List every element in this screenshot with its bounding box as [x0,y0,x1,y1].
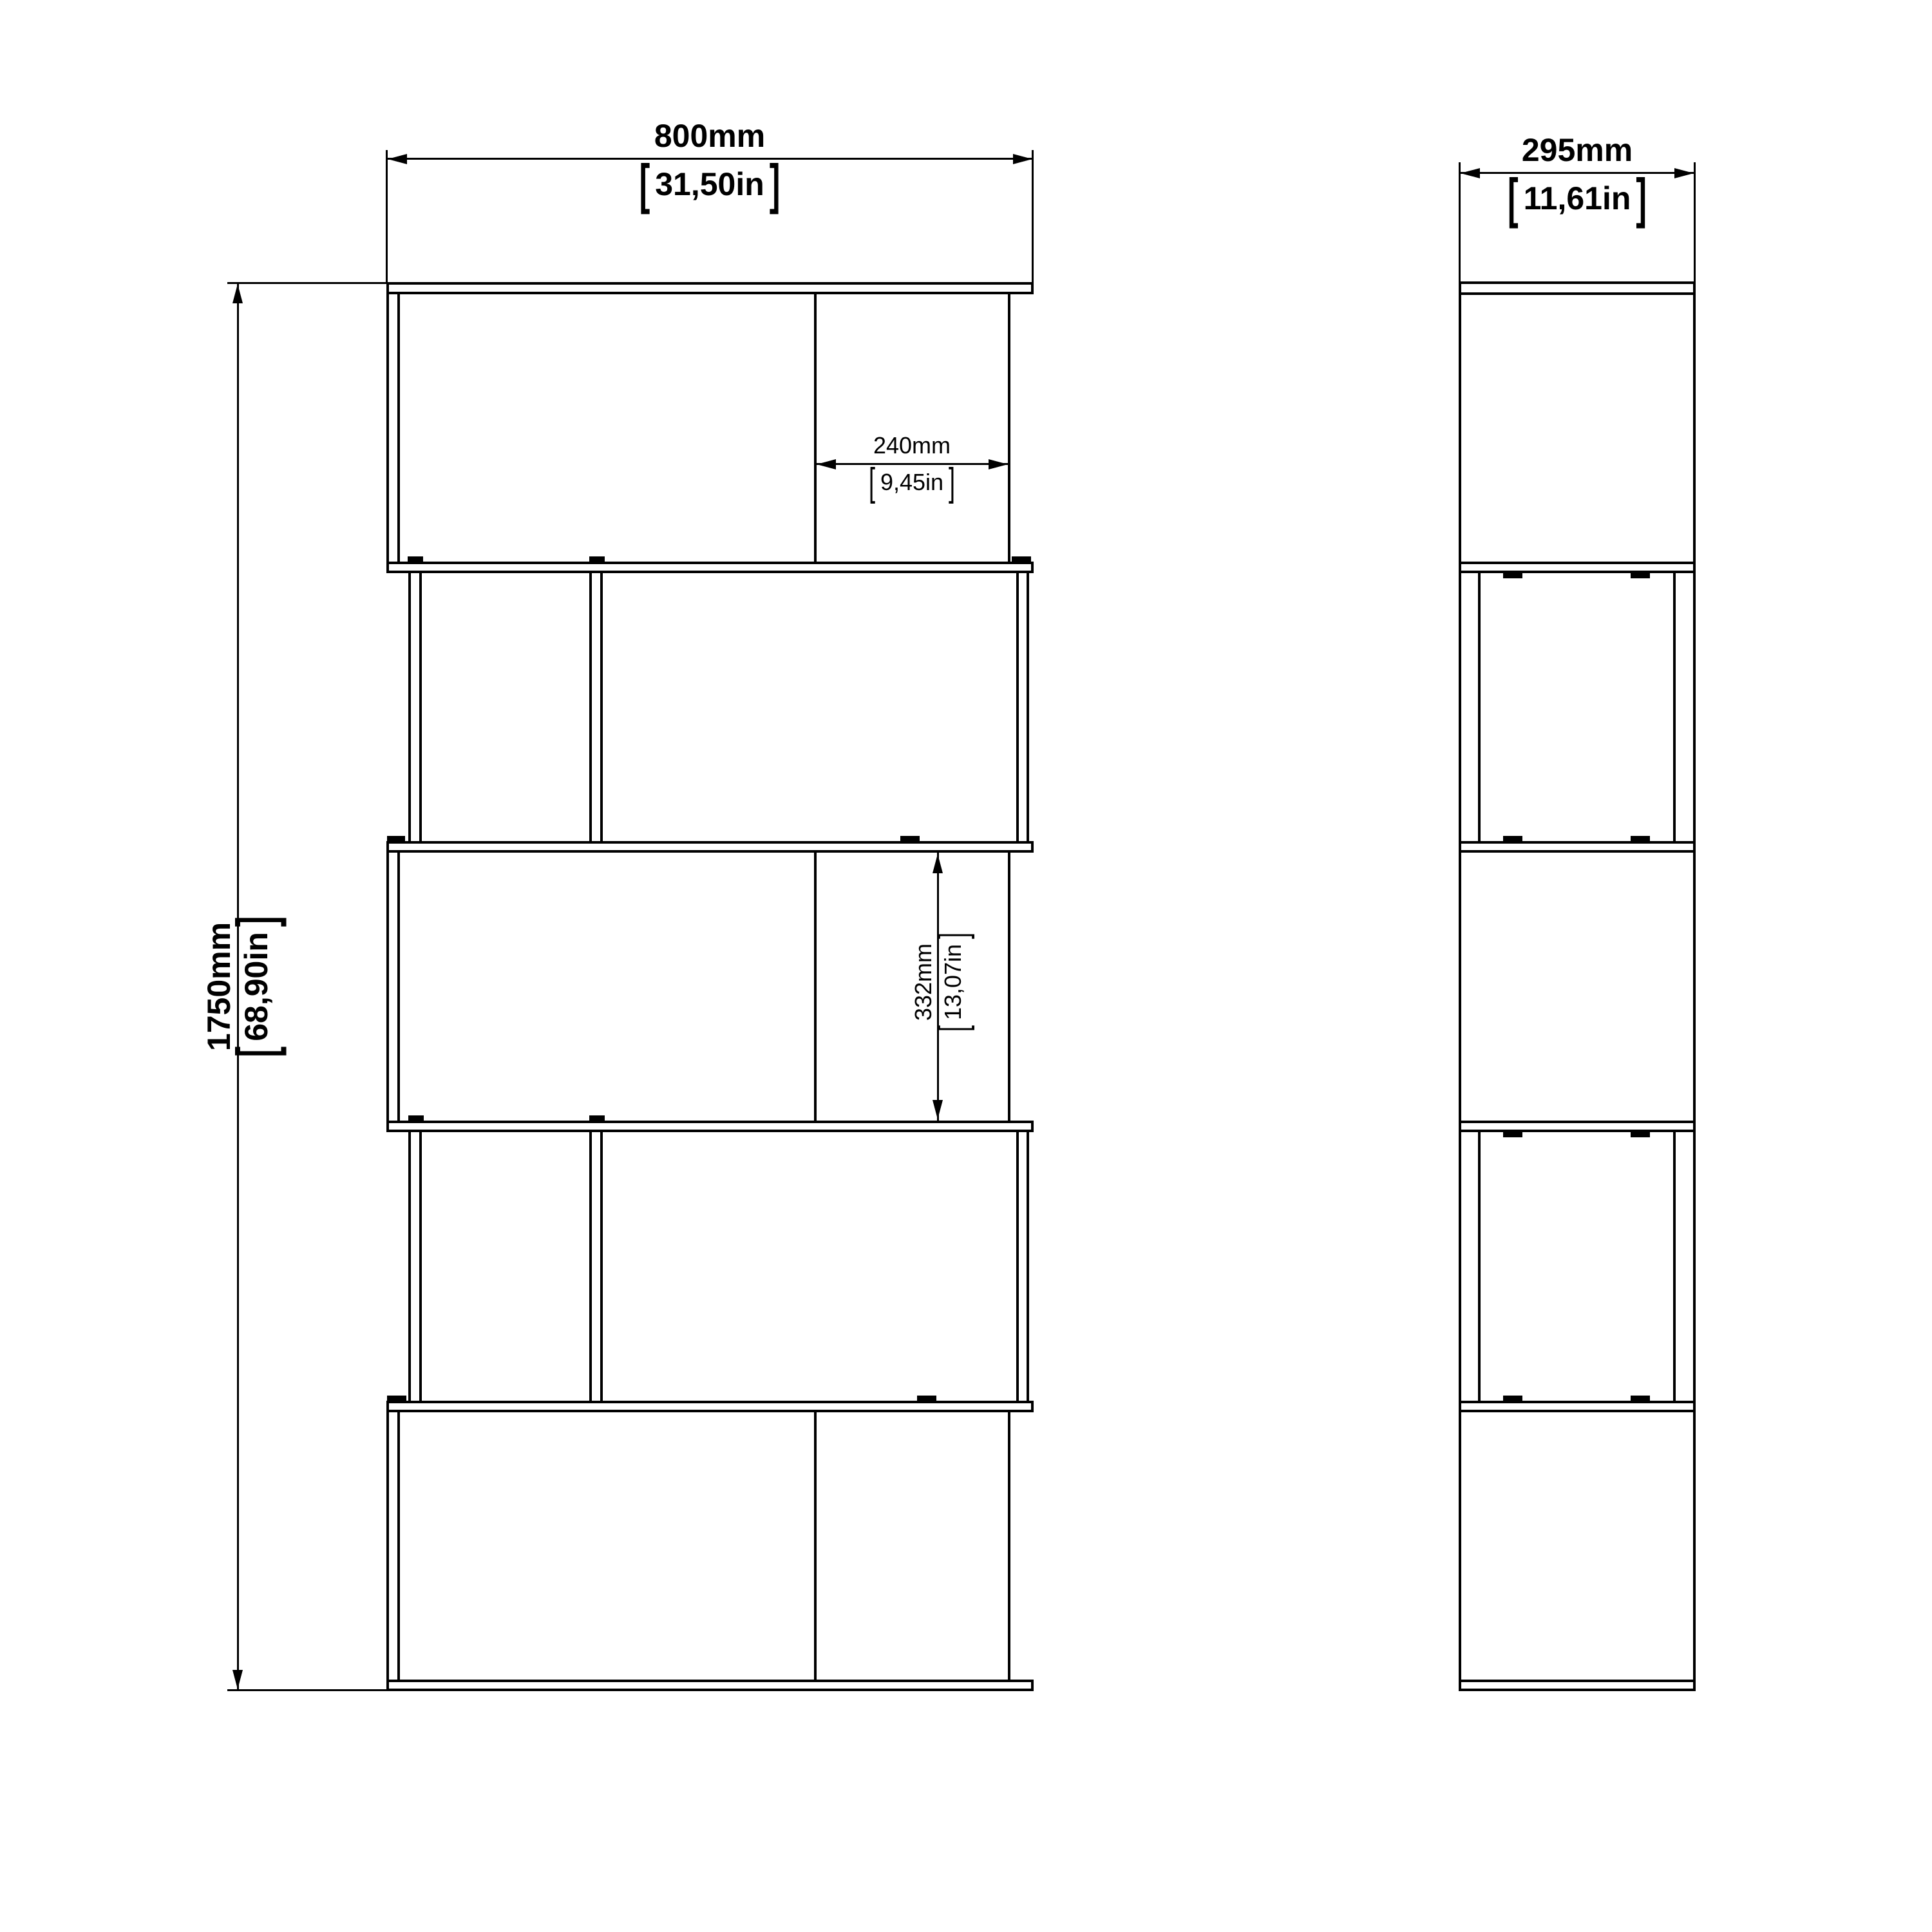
connector-mark [589,556,605,562]
row4-right-wall-inner-line [1016,1132,1019,1401]
row4-left-wall-outer-line [408,1132,411,1401]
row5-right-wall-line [1008,1412,1010,1680]
arrowhead-up [232,284,243,303]
dim-depth-mm: 295mm [1522,132,1633,168]
extension-line [227,282,386,284]
bracket-close: ] [770,153,781,214]
side-shelf4-bottom-line [1461,1410,1693,1412]
row2-right-wall-outer-line [1027,573,1029,841]
front-top-panel [386,282,1034,294]
row3-divider-line [814,853,817,1121]
row1-divider-line [814,294,817,562]
connector-mark [589,1115,605,1121]
row5-left-wall-outer-line [386,1412,389,1680]
connector-mark [1503,1396,1522,1401]
dim-inner-height-inch: [13,07in] [938,927,968,1037]
row2-divider-left-line [589,573,592,841]
dim-inner-height-label: 332mm [13,07in] [909,927,968,1037]
dim-overall-height-inch: [68,90in] [238,911,275,1063]
row1-left-wall-inner-line [397,294,400,562]
front-shelf-panel-3 [386,1121,1034,1132]
bracket-close: ] [225,916,289,927]
side-bottom-panel-line [1461,1680,1693,1682]
connector-mark [917,1396,936,1401]
side-shelf3-top-line [1461,1121,1693,1123]
row1-left-wall-outer-line [386,294,389,562]
connector-mark [1631,573,1650,578]
row3-right-wall-line [1008,853,1010,1121]
arrowhead-left [388,154,407,164]
arrowhead-left [817,459,836,469]
dim-depth-inch: [11,61in] [1502,180,1652,216]
connector-mark [900,836,920,841]
row3-left-wall-outer-line [386,853,389,1121]
dim-overall-height-mm: 1750mm [200,911,238,1063]
extension-line [1694,162,1696,281]
connector-mark [408,556,423,562]
row4-divider-right-line [600,1132,603,1401]
row4-right-wall-outer-line [1027,1132,1029,1401]
front-shelf-panel-4 [386,1401,1034,1412]
side-inset-back-line [1673,1132,1676,1401]
dim-inner-width-mm: 240mm [873,431,951,460]
row5-divider-line [814,1412,817,1680]
connector-mark [1631,1396,1650,1401]
technical-drawing: 800mm [31,50in] 295mm [11,61in] 1750mm [… [0,0,1932,1932]
connector-mark [1631,836,1650,841]
dim-overall-width-mm: 800mm [654,118,765,154]
bracket-close: ] [949,459,955,507]
arrowhead-up [933,854,943,873]
side-inset-back-line [1673,573,1676,841]
row2-right-wall-inner-line [1016,573,1019,841]
arrowhead-right [1013,154,1032,164]
arrowhead-right [989,459,1008,469]
front-bottom-panel [386,1680,1034,1691]
side-shelf4-top-line [1461,1401,1693,1403]
connector-mark [1503,573,1522,578]
row2-left-wall-inner-line [419,573,422,841]
arrowhead-down [232,1670,243,1689]
row3-left-wall-inner-line [397,853,400,1121]
dimension-line-240 [817,463,1008,465]
row2-divider-right-line [600,573,603,841]
front-shelf-panel-2 [386,841,1034,853]
bracket-close: ] [1636,167,1647,229]
dim-overall-height-label: 1750mm [68,90in] [200,911,275,1063]
side-shelf2-top-line [1461,841,1693,844]
side-top-panel-line [1461,292,1693,295]
side-shelf3-bottom-line [1461,1130,1693,1132]
bracket-open: [ [639,153,650,214]
dimension-line-295 [1461,172,1694,174]
side-shelf2-bottom-line [1461,850,1693,853]
dim-inner-height-mm: 332mm [909,927,938,1037]
bracket-open: [ [928,1025,978,1032]
bracket-open: [ [869,459,875,507]
dimension-line-800 [388,158,1032,160]
front-shelf-panel-1 [386,562,1034,573]
connector-mark [408,1115,424,1121]
arrowhead-down [933,1100,943,1119]
connector-mark [1503,836,1522,841]
side-shelf1-bottom-line [1461,571,1693,573]
row2-left-wall-outer-line [408,573,411,841]
connector-mark [1503,1132,1522,1137]
arrowhead-left [1461,168,1480,178]
side-inset-front-line [1478,573,1481,841]
row4-left-wall-inner-line [419,1132,422,1401]
row1-right-wall-line [1008,294,1010,562]
connector-mark [387,1396,406,1401]
side-outline [1459,281,1696,1691]
connector-mark [1631,1132,1650,1137]
connector-mark [1012,556,1031,562]
bracket-open: [ [225,1046,289,1057]
arrowhead-right [1674,168,1694,178]
connector-mark [387,836,405,841]
dim-inner-width-inch: [9,45in] [864,468,960,497]
extension-line [227,1689,386,1691]
row5-left-wall-inner-line [397,1412,400,1680]
extension-line [386,150,388,282]
dim-overall-width-inch: [31,50in] [634,166,786,202]
extension-line [1032,150,1034,282]
extension-line [1459,162,1461,281]
bracket-close: ] [928,933,978,939]
bracket-open: [ [1508,167,1519,229]
row4-divider-left-line [589,1132,592,1401]
side-inset-front-line [1478,1132,1481,1401]
side-shelf1-top-line [1461,562,1693,564]
